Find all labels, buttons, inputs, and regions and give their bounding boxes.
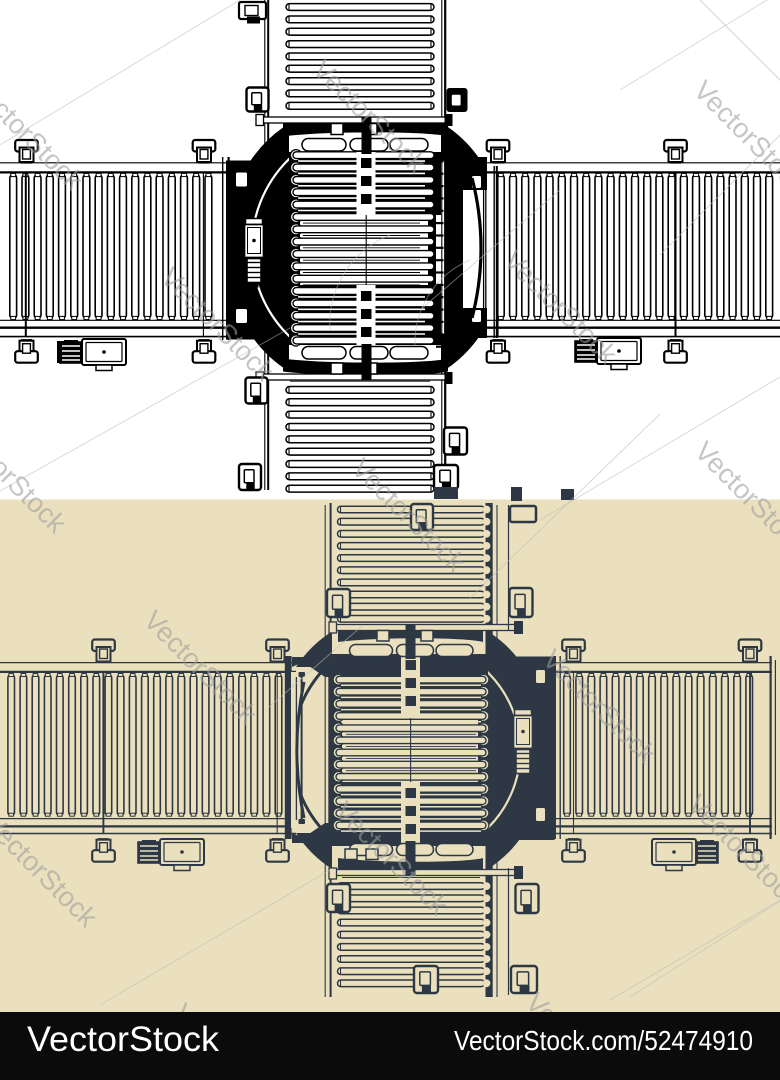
svg-text:VectorStock: VectorStock xyxy=(27,1019,219,1059)
svg-text:VectorStock.com/52474910: VectorStock.com/52474910 xyxy=(454,1025,753,1056)
